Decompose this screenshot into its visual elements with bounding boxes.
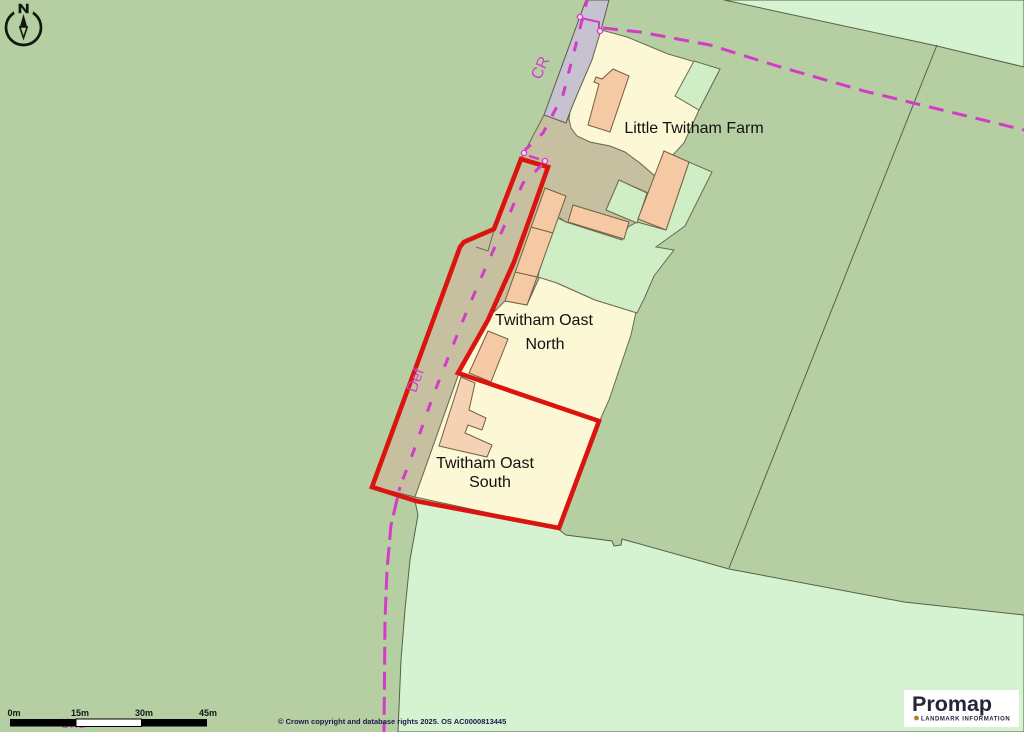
svg-text:Promap: Promap: [912, 692, 992, 716]
svg-text:15m: 15m: [71, 708, 89, 718]
svg-text:North: North: [525, 336, 564, 353]
svg-text:45m: 45m: [199, 708, 217, 718]
svg-text:0m: 0m: [7, 708, 20, 718]
svg-text:© Crown copyright and database: © Crown copyright and database rights 20…: [278, 717, 506, 726]
svg-text:30m: 30m: [135, 708, 153, 718]
svg-text:Twitham Oast: Twitham Oast: [436, 455, 534, 472]
svg-text:South: South: [469, 474, 511, 491]
svg-text:Little Twitham Farm: Little Twitham Farm: [624, 120, 763, 137]
svg-text:Twitham Oast: Twitham Oast: [495, 312, 593, 329]
svg-text:LANDMARK INFORMATION: LANDMARK INFORMATION: [921, 717, 1010, 723]
